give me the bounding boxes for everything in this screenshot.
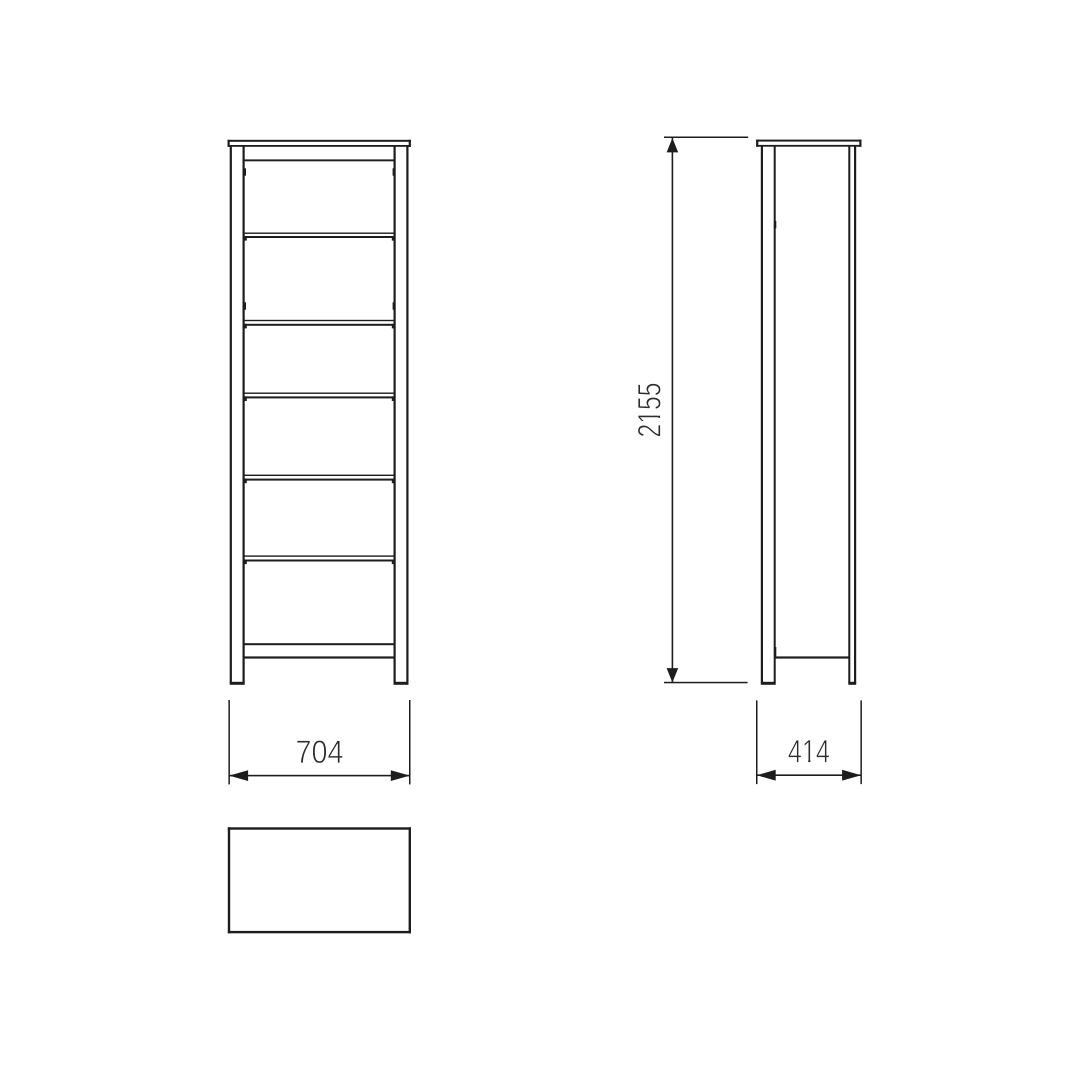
svg-text:704: 704 — [296, 734, 344, 770]
svg-text:2155: 2155 — [631, 383, 667, 438]
svg-text:414: 414 — [788, 734, 830, 770]
